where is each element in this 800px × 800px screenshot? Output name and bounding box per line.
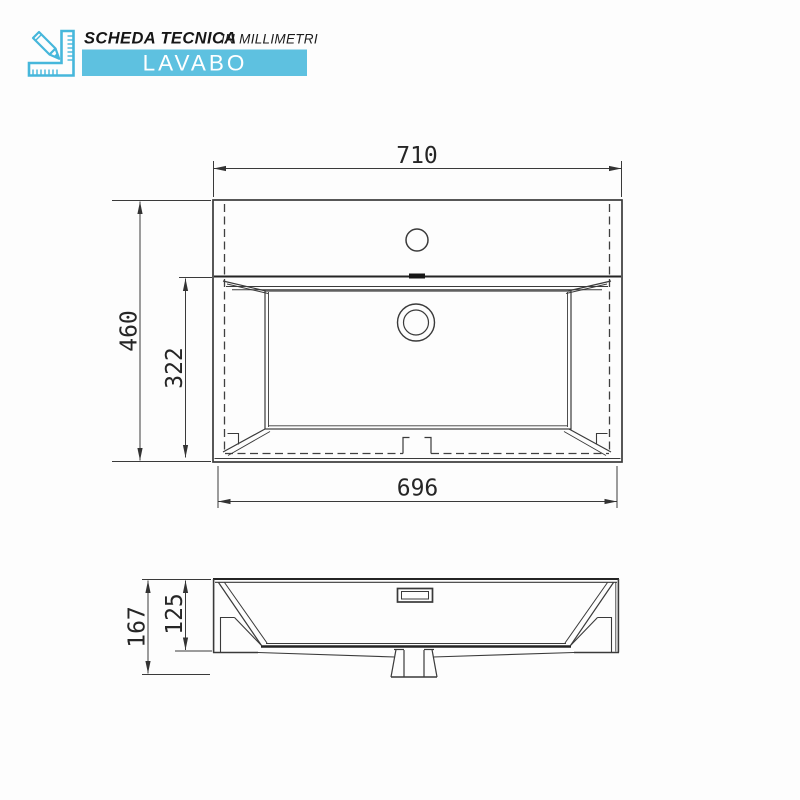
- fixing-marks: [228, 434, 608, 445]
- dimension-overall-depth: 460: [112, 201, 211, 462]
- top-view: 710 460 322 696: [112, 143, 622, 508]
- technical-drawing: SCHEDA TECNICA IN MILLIMETRI LAVABO: [0, 0, 800, 800]
- product-banner-label: LAVABO: [143, 51, 248, 76]
- front-view-outline: [213, 579, 619, 653]
- dimension-bottom-width: 696: [218, 466, 617, 508]
- basin-section-walls: [219, 583, 614, 658]
- front-view: 167 125: [125, 579, 620, 677]
- top-view-hidden-outline: [225, 204, 610, 454]
- dim-label-overall-height: 167: [125, 606, 151, 648]
- header: SCHEDA TECNICA IN MILLIMETRI LAVABO: [29, 30, 318, 77]
- dimension-top-width: 710: [214, 143, 622, 197]
- dim-label-basin-inner-height: 125: [162, 593, 188, 635]
- drain-trap: [391, 650, 437, 678]
- dim-label-top-width: 710: [396, 143, 438, 169]
- drain-hole: [398, 304, 435, 341]
- pencil-ruler-icon: [29, 31, 74, 76]
- overflow-slot: [398, 589, 433, 603]
- dim-label-basin-depth: 322: [162, 347, 188, 389]
- dim-label-bottom-width: 696: [397, 476, 439, 502]
- sheet-title: SCHEDA TECNICA: [84, 30, 237, 48]
- dimension-basin-inner-height: 125: [162, 581, 212, 652]
- top-view-outline: [213, 200, 622, 462]
- basin-inner-outline: [223, 281, 611, 456]
- technical-sheet-page: SCHEDA TECNICA IN MILLIMETRI LAVABO: [0, 0, 800, 800]
- sheet-subtitle: IN MILLIMETRI: [221, 32, 318, 47]
- dim-label-overall-depth: 460: [117, 310, 143, 352]
- overflow-mark: [409, 274, 425, 279]
- drain-outlet-hidden: [403, 438, 431, 454]
- dimension-basin-depth: 322: [162, 278, 212, 458]
- faucet-hole: [406, 229, 428, 251]
